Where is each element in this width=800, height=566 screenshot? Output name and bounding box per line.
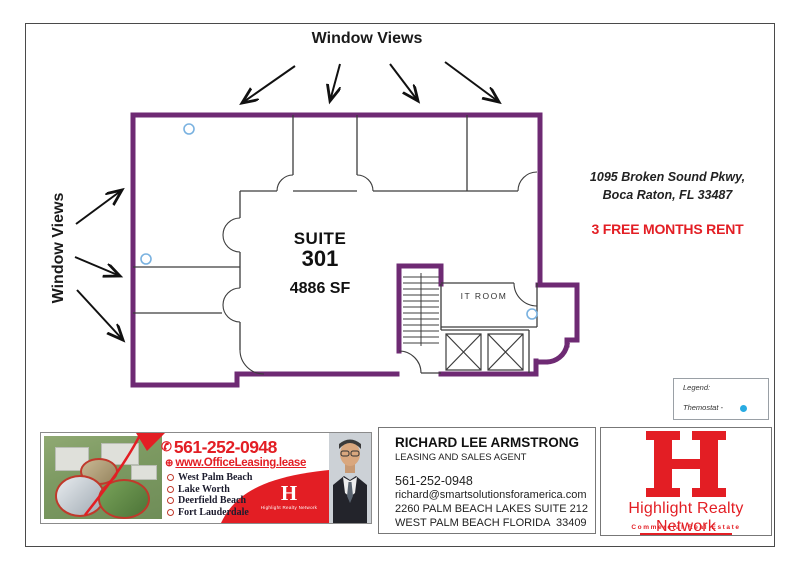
city-item: Deerfield Beach — [167, 495, 252, 507]
suite-number: 301 — [250, 246, 390, 272]
bullet-icon — [167, 509, 174, 516]
suite-area: 4886 SF — [250, 280, 390, 298]
arrow-icon — [445, 62, 499, 102]
it-room-label: IT ROOM — [441, 291, 527, 301]
phone-icon: ✆ — [161, 439, 172, 455]
window-views-top-label: Window Views — [272, 30, 462, 48]
brand-rule — [640, 533, 732, 535]
banner-logo-letter: H — [269, 481, 309, 506]
agent-email: richard@smartsolutionsforamerica.com — [395, 489, 587, 501]
city-list: West Palm Beach Lake Worth Deerfield Bea… — [167, 472, 252, 518]
address-line-1: 1095 Broken Sound Pkwy, — [585, 170, 750, 184]
agent-card: RICHARD LEE ARMSTRONG LEASING AND SALES … — [378, 427, 596, 534]
elevator-shafts — [446, 334, 523, 370]
banner-website-link: www.OfficeLeasing.lease — [175, 457, 306, 469]
flyer-page: Window Views Window Views SUITE 301 4886… — [0, 0, 800, 566]
city-name: West Palm Beach — [178, 472, 252, 483]
legend-title: Legend: — [683, 383, 710, 392]
agent-name: RICHARD LEE ARMSTRONG — [395, 435, 579, 450]
staircase — [403, 273, 439, 346]
promo-text: 3 FREE MONTHS RENT — [580, 221, 755, 237]
thermostat-dot — [527, 309, 537, 319]
bullet-icon — [167, 474, 174, 481]
legend-item-label: Themostat - — [683, 403, 723, 412]
door-arcs — [223, 172, 537, 374]
city-name: Fort Lauderdale — [178, 507, 249, 518]
arrow-icon — [330, 64, 340, 101]
city-item: Lake Worth — [167, 484, 252, 496]
banner-website-row: ⊕ www.OfficeLeasing.lease — [165, 456, 306, 470]
city-item: West Palm Beach — [167, 472, 252, 484]
legend-thermostat-dot-icon — [740, 405, 747, 412]
agent-address-2: WEST PALM BEACH FLORIDA 33409 — [395, 517, 587, 529]
address-line-2: Boca Raton, FL 33487 — [585, 188, 750, 202]
agent-address-1: 2260 PALM BEACH LAKES SUITE 212 — [395, 503, 588, 515]
brand-tagline: Commercial Real Estate — [601, 524, 771, 531]
h-logo-icon — [646, 431, 726, 497]
city-name: Deerfield Beach — [178, 495, 246, 506]
globe-icon: ⊕ — [165, 458, 173, 469]
city-name: Lake Worth — [178, 484, 230, 495]
window-view-arrows — [75, 62, 499, 340]
banner-logo-name: Highlight Realty Network — [253, 505, 325, 510]
brand-card: Highlight Realty Network Commercial Real… — [600, 427, 772, 536]
agent-phone: 561-252-0948 — [395, 474, 473, 488]
bullet-icon — [167, 486, 174, 493]
agent-title: LEASING AND SALES AGENT — [395, 452, 526, 463]
ad-banner: ✆ 561-252-0948 ⊕ www.OfficeLeasing.lease… — [40, 432, 372, 524]
arrow-icon — [77, 290, 123, 340]
bullet-icon — [167, 497, 174, 504]
arrow-icon — [76, 190, 122, 224]
arrow-icon — [242, 66, 295, 103]
arrow-icon — [390, 64, 418, 101]
banner-phone-row: ✆ 561-252-0948 — [161, 437, 277, 457]
thermostat-dot — [141, 254, 151, 264]
city-item: Fort Lauderdale — [167, 507, 252, 519]
agent-photo — [329, 433, 371, 523]
legend-box: Legend: Themostat - — [673, 378, 769, 420]
banner-phone-number: 561-252-0948 — [174, 437, 277, 458]
thermostat-dot — [184, 124, 194, 134]
window-views-left-label: Window Views — [50, 162, 68, 334]
arrow-icon — [75, 257, 120, 276]
